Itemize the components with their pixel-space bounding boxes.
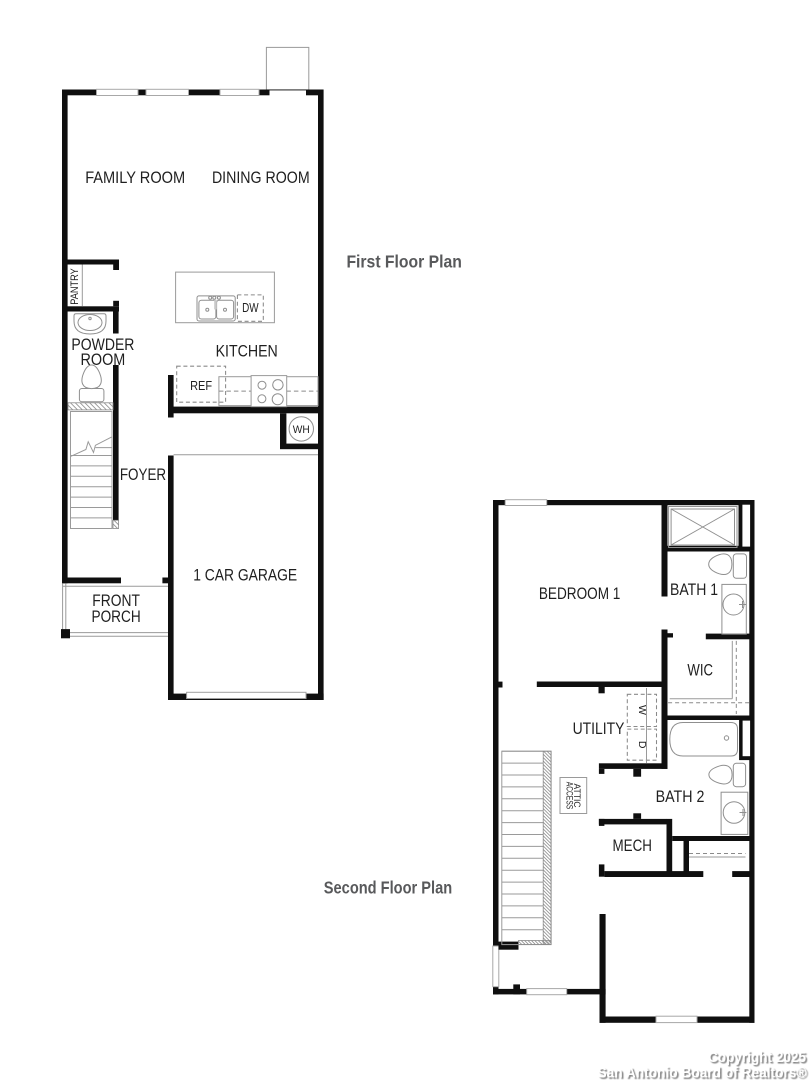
svg-text:FOYER: FOYER <box>120 466 166 484</box>
svg-text:BATH 2: BATH 2 <box>656 788 705 806</box>
svg-text:UTILITY: UTILITY <box>573 720 625 738</box>
svg-text:PANTRY: PANTRY <box>69 268 81 305</box>
svg-text:ACCESS: ACCESS <box>565 782 575 810</box>
svg-text:KITCHEN: KITCHEN <box>216 343 278 361</box>
svg-text:FRONT: FRONT <box>92 592 140 610</box>
svg-text:REF: REF <box>190 379 212 393</box>
svg-text:Copyright 2025: Copyright 2025 <box>708 1049 806 1066</box>
svg-text:WH: WH <box>293 424 310 436</box>
svg-text:First Floor Plan: First Floor Plan <box>346 252 462 272</box>
svg-text:D: D <box>636 741 648 749</box>
svg-text:BATH 1: BATH 1 <box>670 581 718 599</box>
svg-text:PORCH: PORCH <box>92 608 141 626</box>
svg-text:W: W <box>636 705 648 715</box>
svg-text:MECH: MECH <box>613 837 652 855</box>
svg-text:DW: DW <box>242 301 259 315</box>
svg-text:FAMILY ROOM: FAMILY ROOM <box>85 169 185 187</box>
svg-text:Second Floor Plan: Second Floor Plan <box>324 878 452 898</box>
svg-text:WIC: WIC <box>687 661 713 679</box>
svg-text:BEDROOM 1: BEDROOM 1 <box>539 585 621 603</box>
svg-text:ROOM: ROOM <box>81 351 126 369</box>
svg-text:1 CAR GARAGE: 1 CAR GARAGE <box>193 567 297 585</box>
svg-text:San Antonio Board of Realtors®: San Antonio Board of Realtors® <box>598 1065 807 1080</box>
svg-text:DINING ROOM: DINING ROOM <box>212 169 310 187</box>
